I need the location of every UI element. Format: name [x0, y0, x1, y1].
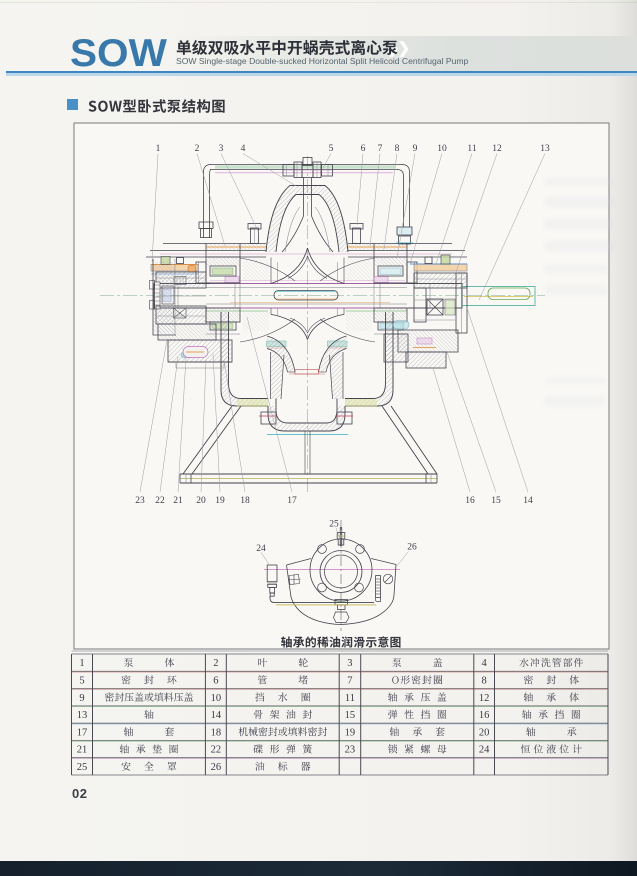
- svg-text:21: 21: [77, 745, 88, 756]
- svg-text:19: 19: [345, 727, 356, 738]
- svg-text:23: 23: [345, 745, 356, 756]
- svg-text:13: 13: [77, 710, 88, 721]
- svg-text:17: 17: [77, 727, 88, 738]
- svg-text:6: 6: [213, 676, 218, 687]
- svg-text:3: 3: [347, 658, 352, 669]
- svg-text:4: 4: [481, 658, 487, 669]
- svg-text:16: 16: [479, 710, 490, 721]
- svg-text:24: 24: [479, 745, 490, 756]
- svg-text:8: 8: [481, 676, 486, 687]
- svg-text:2: 2: [213, 658, 218, 669]
- svg-text:7: 7: [347, 676, 352, 687]
- svg-text:22: 22: [211, 745, 222, 756]
- svg-text:15: 15: [345, 710, 356, 721]
- svg-text:18: 18: [211, 727, 222, 738]
- svg-text:12: 12: [479, 693, 490, 704]
- svg-text:25: 25: [77, 762, 88, 773]
- svg-text:9: 9: [79, 693, 84, 704]
- svg-text:14: 14: [211, 710, 222, 721]
- svg-text:5: 5: [79, 676, 84, 687]
- svg-text:20: 20: [479, 727, 490, 738]
- svg-text:26: 26: [211, 762, 222, 773]
- svg-text:11: 11: [345, 693, 355, 704]
- svg-text:1: 1: [79, 658, 84, 669]
- svg-text:10: 10: [211, 693, 222, 704]
